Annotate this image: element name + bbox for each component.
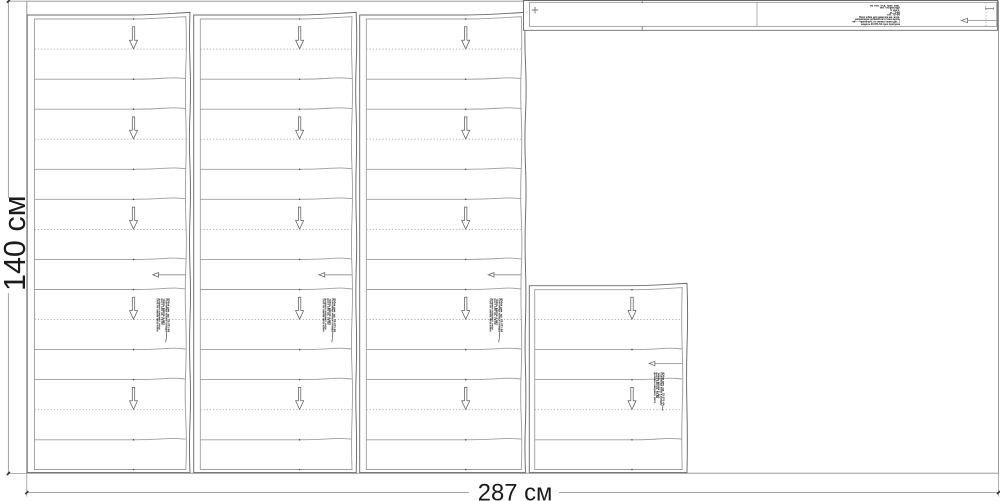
svg-text:долевое направл. нити: долевое направл. нити: [653, 373, 656, 404]
svg-text:модель 23.071-64 срез припуска: модель 23.071-64 срез припуска: [861, 22, 901, 26]
svg-text:сгиб по линии низа юбки: сгиб по линии низа юбки: [322, 299, 326, 332]
svg-text:287 см: 287 см: [478, 480, 553, 501]
svg-text:сгиб по линии низа юбки: сгиб по линии низа юбки: [155, 299, 159, 332]
svg-text:сгиб по линии низа юбки: сгиб по линии низа юбки: [488, 299, 492, 332]
